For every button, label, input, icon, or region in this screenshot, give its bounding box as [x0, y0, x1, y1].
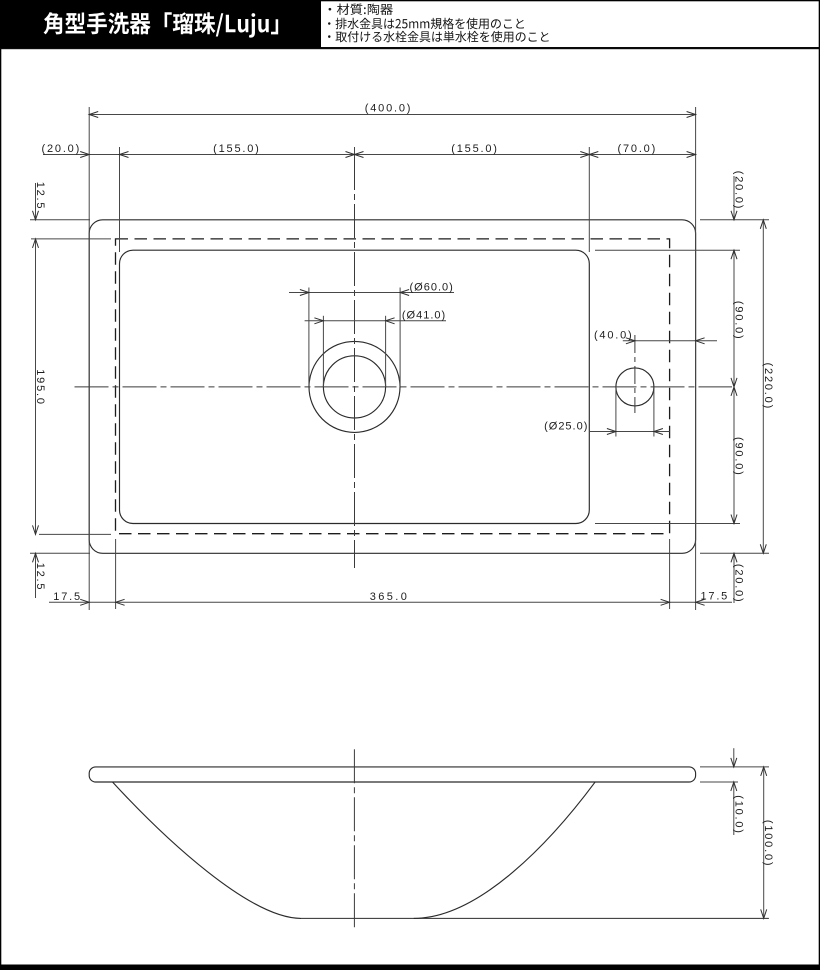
- svg-text:(220.0): (220.0): [762, 363, 774, 410]
- svg-text:12.5: 12.5: [34, 182, 46, 211]
- svg-text:(Ø25.0): (Ø25.0): [544, 420, 588, 432]
- svg-text:(90.0): (90.0): [733, 437, 745, 477]
- svg-text:(Ø60.0): (Ø60.0): [410, 281, 454, 293]
- svg-text:(155.0): (155.0): [451, 143, 498, 155]
- svg-text:(400.0): (400.0): [365, 103, 412, 115]
- svg-text:195.0: 195.0: [34, 369, 46, 406]
- svg-text:(155.0): (155.0): [213, 143, 260, 155]
- svg-text:(70.0): (70.0): [618, 143, 658, 155]
- svg-text:(10.0): (10.0): [732, 795, 744, 835]
- svg-text:(Ø41.0): (Ø41.0): [402, 310, 446, 322]
- svg-text:(90.0): (90.0): [733, 301, 745, 341]
- svg-text:(20.0): (20.0): [733, 171, 745, 211]
- svg-text:(100.0): (100.0): [762, 820, 774, 867]
- svg-text:(20.0): (20.0): [42, 143, 82, 155]
- svg-text:12.5: 12.5: [34, 563, 46, 592]
- svg-text:(20.0): (20.0): [733, 564, 745, 604]
- svg-text:(40.0): (40.0): [594, 329, 634, 341]
- svg-text:365.0: 365.0: [370, 591, 410, 603]
- svg-text:17.5: 17.5: [700, 591, 729, 603]
- svg-text:17.5: 17.5: [53, 591, 82, 603]
